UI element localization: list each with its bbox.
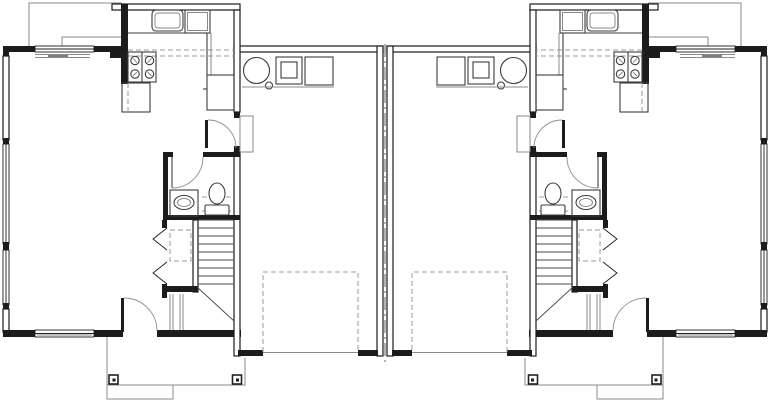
floor-plan-canvas bbox=[0, 0, 770, 402]
duplex-floor-plan bbox=[0, 0, 770, 402]
unit-left bbox=[3, 3, 383, 399]
unit-right-mirrored bbox=[387, 3, 767, 399]
